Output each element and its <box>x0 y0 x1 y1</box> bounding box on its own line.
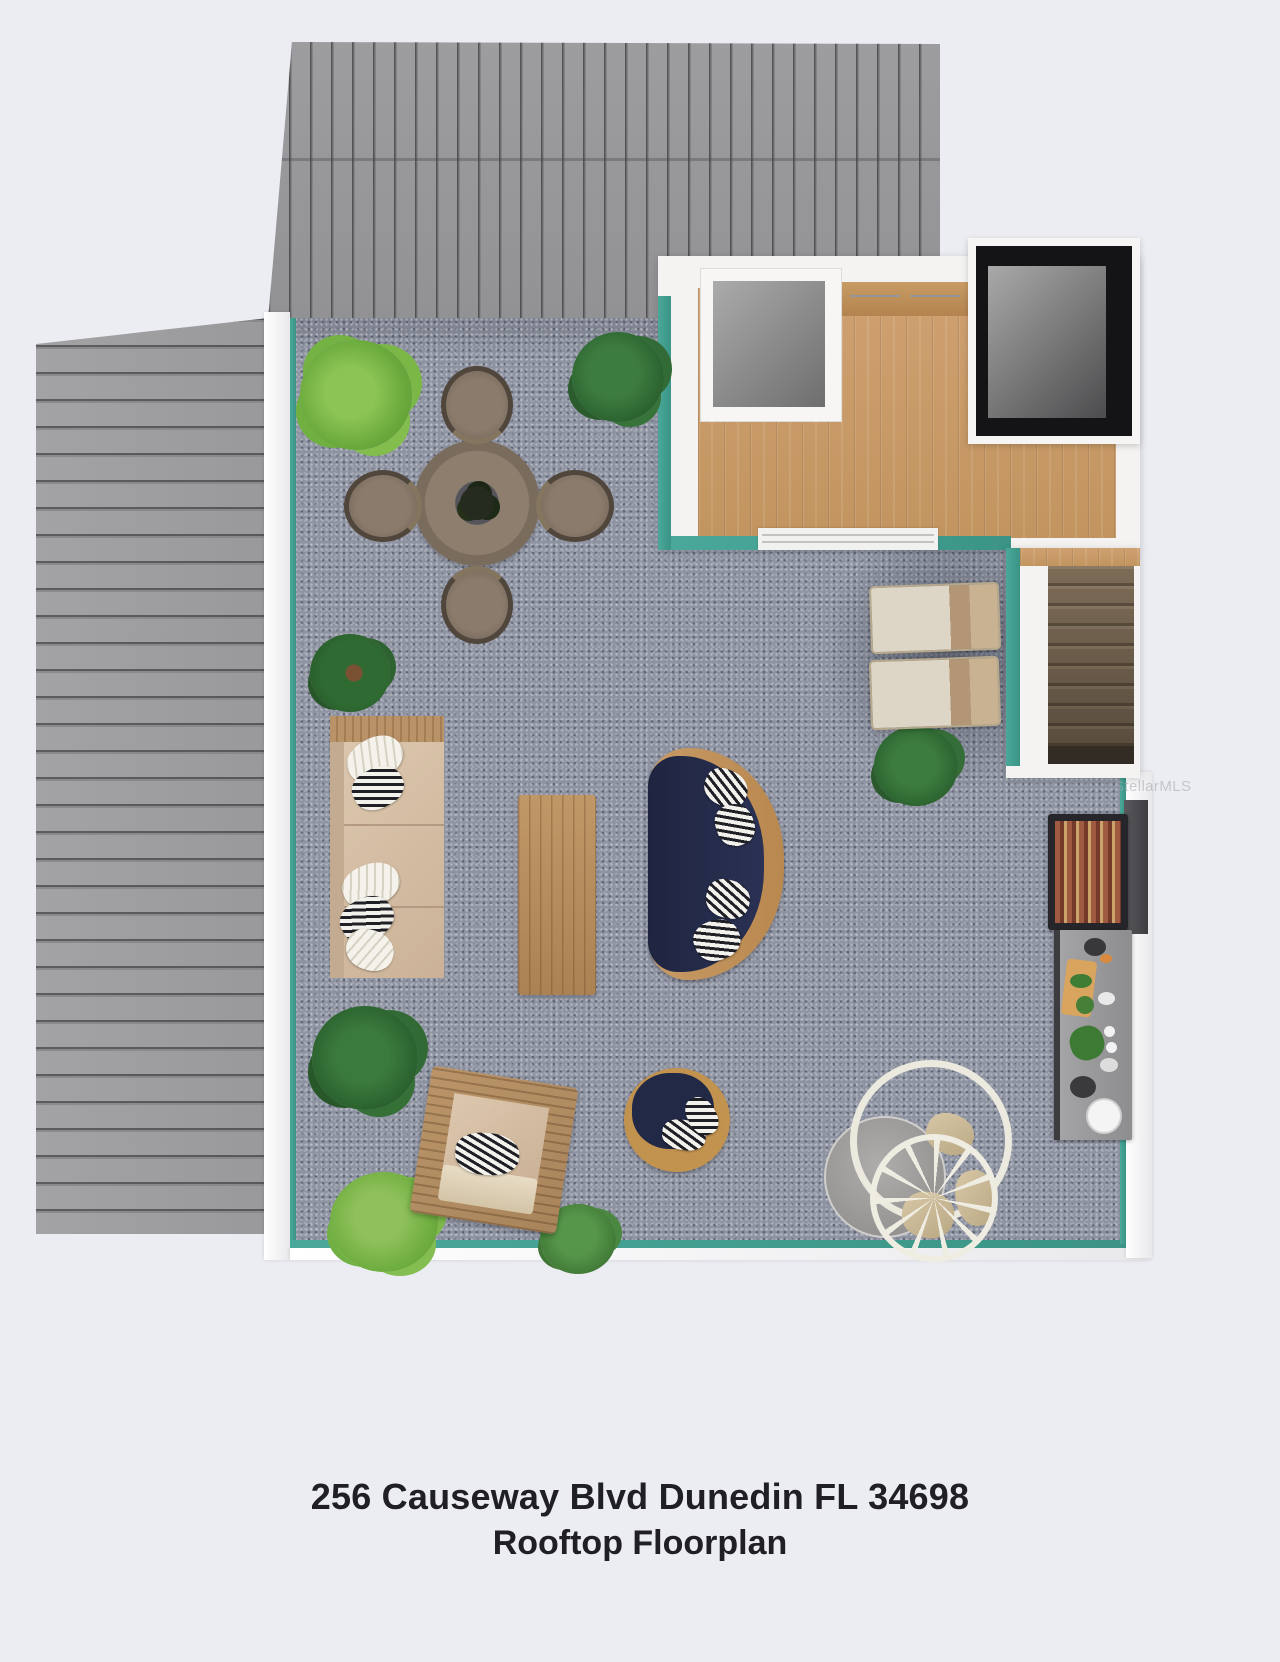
lounge-chair <box>869 582 1001 654</box>
stair-landing-top <box>1020 548 1140 566</box>
door-track <box>762 541 934 543</box>
grill-food <box>1055 821 1121 923</box>
carrot <box>1100 954 1112 963</box>
vegetables <box>1076 996 1094 1014</box>
coffee-table <box>518 795 596 995</box>
dining-table <box>414 440 540 566</box>
vegetables <box>1070 974 1092 988</box>
stair-wing <box>1006 548 1140 778</box>
wing-teal-wall <box>1006 548 1020 766</box>
lounge-chair <box>869 656 1001 730</box>
table-centerpiece-plant <box>460 486 494 520</box>
floorplan-title: Rooftop Floorplan <box>0 1524 1280 1563</box>
sofa-armrest <box>330 742 344 978</box>
address-caption: 256 Causeway Blvd Dunedin FL 34698 <box>0 1476 1280 1518</box>
door-track <box>762 534 934 536</box>
egg-chair-spoke-wheel <box>870 1134 998 1262</box>
bush-plant <box>874 726 958 806</box>
hanging-egg-chair <box>806 1058 1016 1268</box>
round-navy-chair <box>624 1068 730 1172</box>
staircase <box>1048 566 1134 746</box>
plate <box>1098 992 1115 1005</box>
wicker-chair-west <box>344 470 422 542</box>
skylight-shaft <box>968 238 1140 444</box>
striped-pillow <box>702 875 754 923</box>
sliding-door-sill <box>758 528 938 550</box>
bush-plant <box>572 332 664 422</box>
striped-pillow <box>710 799 759 851</box>
teal-edge-left <box>290 318 296 1246</box>
left-gable-roof <box>36 318 268 1234</box>
stair-lower-landing <box>1048 746 1134 764</box>
wicker-chair-north <box>441 366 513 444</box>
outdoor-sofa <box>330 716 444 978</box>
interior-landing-room <box>658 256 1140 550</box>
roll <box>1106 1042 1117 1053</box>
grill <box>1048 814 1128 930</box>
parapet-wall-left <box>264 312 290 1260</box>
cushion-seam <box>344 824 444 826</box>
kitchen-cabinets <box>842 282 968 316</box>
skylight-panel <box>988 266 1106 418</box>
watermark: StellarMLS <box>1114 778 1191 795</box>
counter-edge <box>1054 930 1060 1140</box>
room-teal-wall-left <box>658 296 671 550</box>
roll <box>1104 1026 1115 1037</box>
closet <box>700 268 842 422</box>
cabinet-handle <box>850 295 900 297</box>
roof-seam <box>268 158 940 161</box>
rooftop-floorplan: StellarMLS 256 Causeway Blvd Dunedin FL … <box>0 0 1280 1662</box>
pot <box>1070 1076 1096 1098</box>
closet-interior <box>713 281 825 407</box>
wicker-armchair <box>409 1065 578 1234</box>
wicker-chair-east <box>536 470 614 542</box>
bush-plant <box>312 1006 418 1110</box>
potted-plant <box>310 634 390 712</box>
prep-counter <box>1054 930 1132 1140</box>
wicker-chair-south <box>441 566 513 644</box>
herbs <box>1066 1022 1109 1065</box>
sink <box>1086 1098 1122 1134</box>
pan <box>1084 938 1106 956</box>
fern-plant <box>300 340 412 450</box>
plate <box>1100 1058 1118 1072</box>
cabinet-handle <box>910 295 960 297</box>
